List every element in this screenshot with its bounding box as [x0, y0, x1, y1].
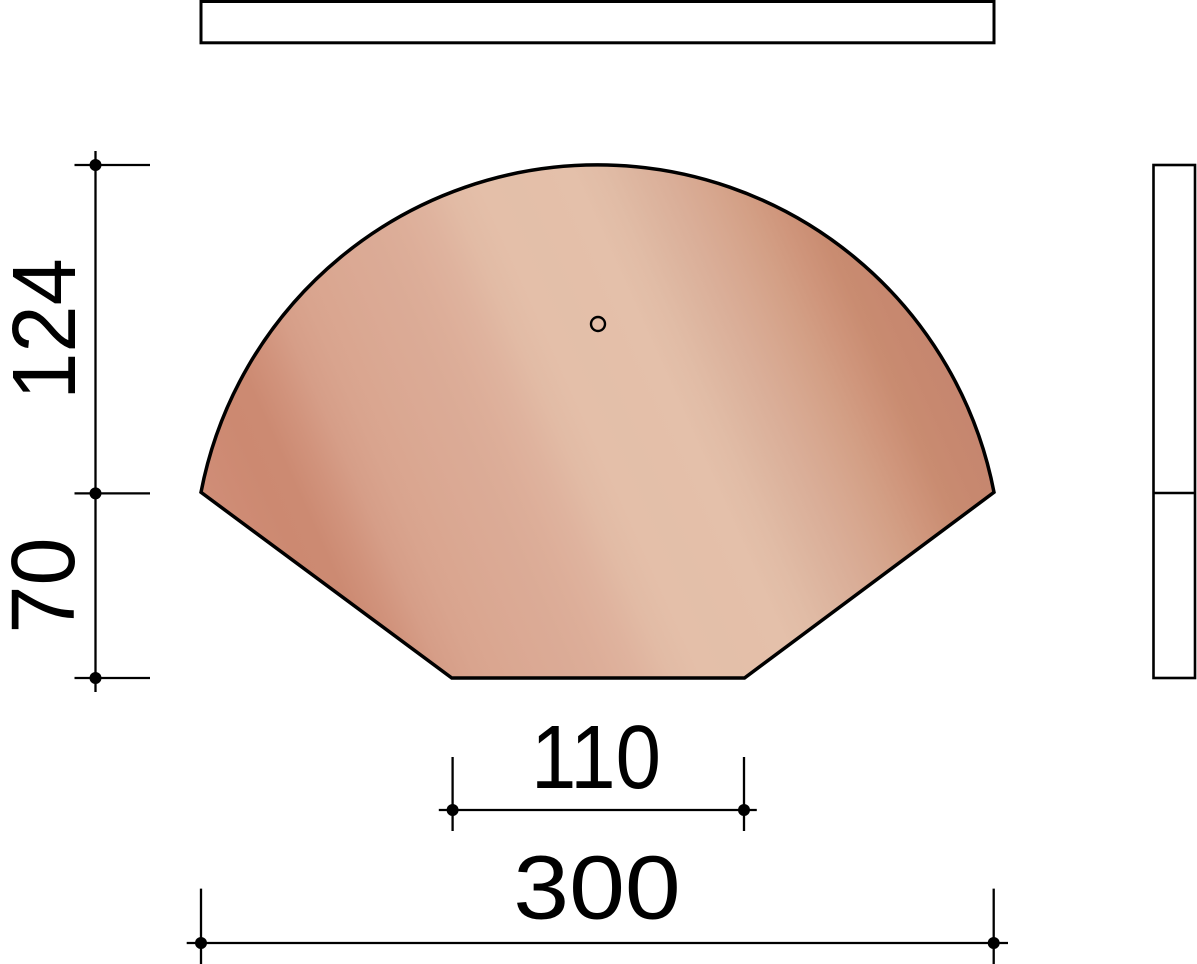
svg-text:300: 300 — [513, 839, 681, 939]
svg-text:70: 70 — [0, 538, 94, 634]
svg-text:110: 110 — [531, 708, 661, 808]
svg-text:124: 124 — [0, 258, 95, 400]
